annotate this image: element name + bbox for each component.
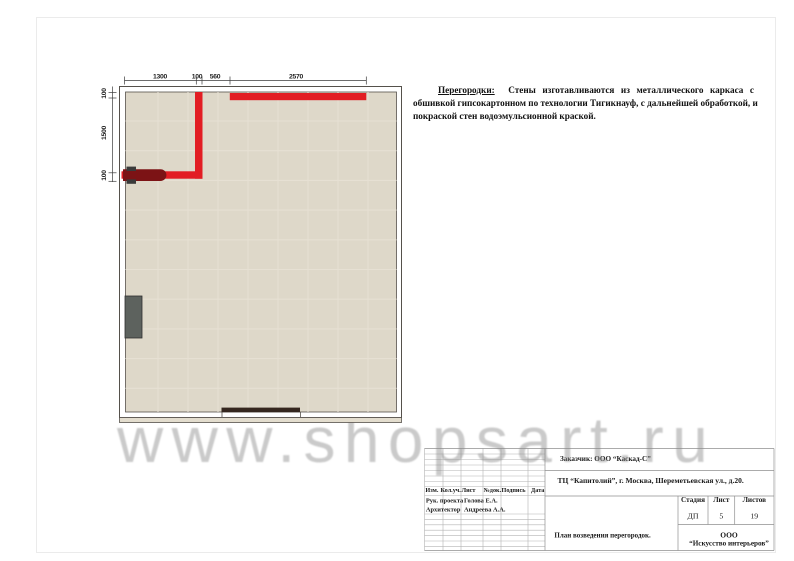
svg-text:1300: 1300 <box>153 74 167 81</box>
svg-text:№док.: №док. <box>484 487 502 494</box>
svg-text:Голова Е.А.: Голова Е.А. <box>464 498 498 505</box>
svg-text:5: 5 <box>719 512 723 521</box>
svg-text:“Искусство интерьеров”: “Искусство интерьеров” <box>689 539 769 547</box>
svg-text:Андреева А.А.: Андреева А.А. <box>464 506 506 513</box>
svg-text:100: 100 <box>101 88 108 99</box>
svg-text:2570: 2570 <box>289 74 303 81</box>
svg-text:ТЦ “Капитолий”, г. Москва, Шер: ТЦ “Капитолий”, г. Москва, Шереметьевска… <box>558 476 744 485</box>
svg-text:Подпись: Подпись <box>502 487 527 494</box>
svg-text:Кол.уч.: Кол.уч. <box>441 487 462 494</box>
svg-text:Лист: Лист <box>462 487 476 494</box>
svg-text:Архитектор: Архитектор <box>426 506 461 513</box>
svg-text:Дата: Дата <box>531 487 544 494</box>
svg-text:19: 19 <box>750 512 758 521</box>
svg-text:ДП: ДП <box>688 512 699 521</box>
svg-text:Листов: Листов <box>743 496 767 504</box>
svg-text:1500: 1500 <box>101 126 108 140</box>
svg-text:100: 100 <box>101 170 108 181</box>
svg-text:560: 560 <box>210 74 221 81</box>
svg-text:Стадия: Стадия <box>681 496 705 504</box>
svg-text:Изм.: Изм. <box>425 487 438 494</box>
svg-text:План возведения перегородок.: План возведения перегородок. <box>554 531 651 539</box>
svg-text:Рук. проекта: Рук. проекта <box>426 498 464 505</box>
svg-text:100: 100 <box>192 74 203 81</box>
svg-text:ООО: ООО <box>720 530 738 539</box>
svg-text:Лист: Лист <box>713 496 730 504</box>
